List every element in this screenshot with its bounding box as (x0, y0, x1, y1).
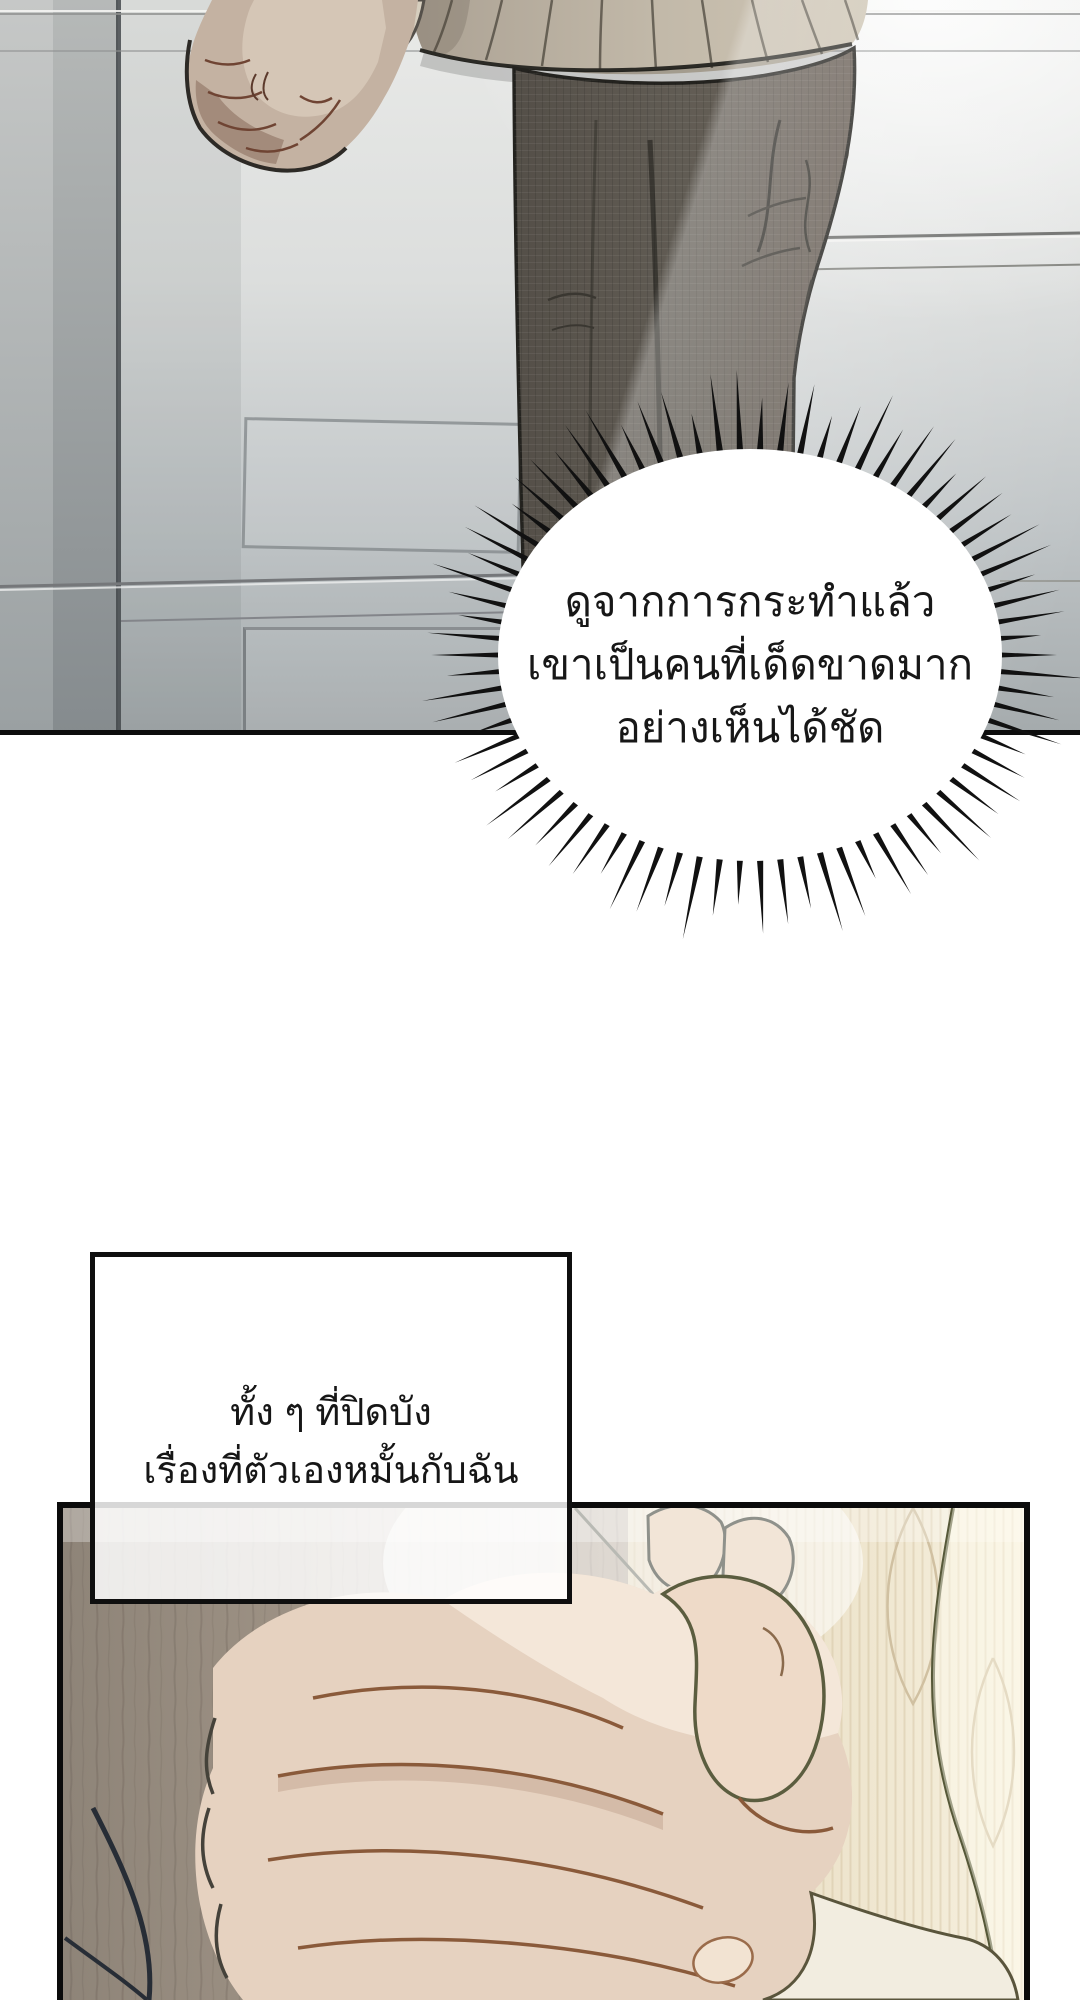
speech-bubble-text: ดูจากการกระทำแล้ว เขาเป็นคนที่เด็ดขาดมาก… (458, 570, 1042, 759)
narration-text: ทั้ง ๆ ที่ปิดบัง เรื่องที่ตัวเองหมั้นกับ… (143, 1384, 518, 1500)
burst-speech-bubble: ดูจากการกระทำแล้ว เขาเป็นคนที่เด็ดขาดมาก… (398, 312, 1080, 1012)
narration-box: ทั้ง ๆ ที่ปิดบัง เรื่องที่ตัวเองหมั้นกับ… (90, 1252, 572, 1604)
speech-line-2: เขาเป็นคนที่เด็ดขาดมาก (458, 633, 1042, 696)
comic-page: ดูจากการกระทำแล้ว เขาเป็นคนที่เด็ดขาดมาก… (0, 0, 1080, 2000)
narration-line-1: ทั้ง ๆ ที่ปิดบัง (143, 1384, 518, 1442)
speech-line-3: อย่างเห็นได้ชัด (458, 696, 1042, 759)
narration-line-2: เรื่องที่ตัวเองหมั้นกับฉัน (143, 1442, 518, 1500)
speech-line-1: ดูจากการกระทำแล้ว (458, 570, 1042, 633)
